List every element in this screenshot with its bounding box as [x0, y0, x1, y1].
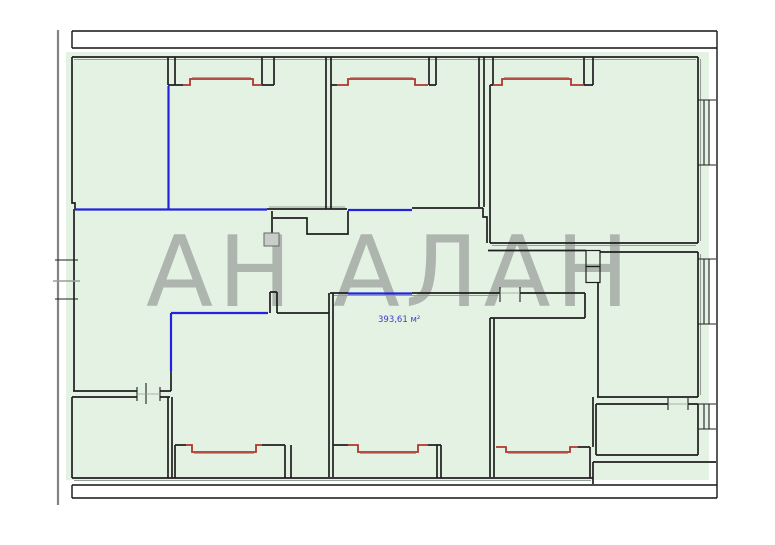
area-label: 393,61 м² [378, 315, 420, 325]
floor-plan-drawing: АН АЛАН [0, 0, 775, 545]
floor-plan-canvas: АН АЛАН [0, 0, 775, 545]
